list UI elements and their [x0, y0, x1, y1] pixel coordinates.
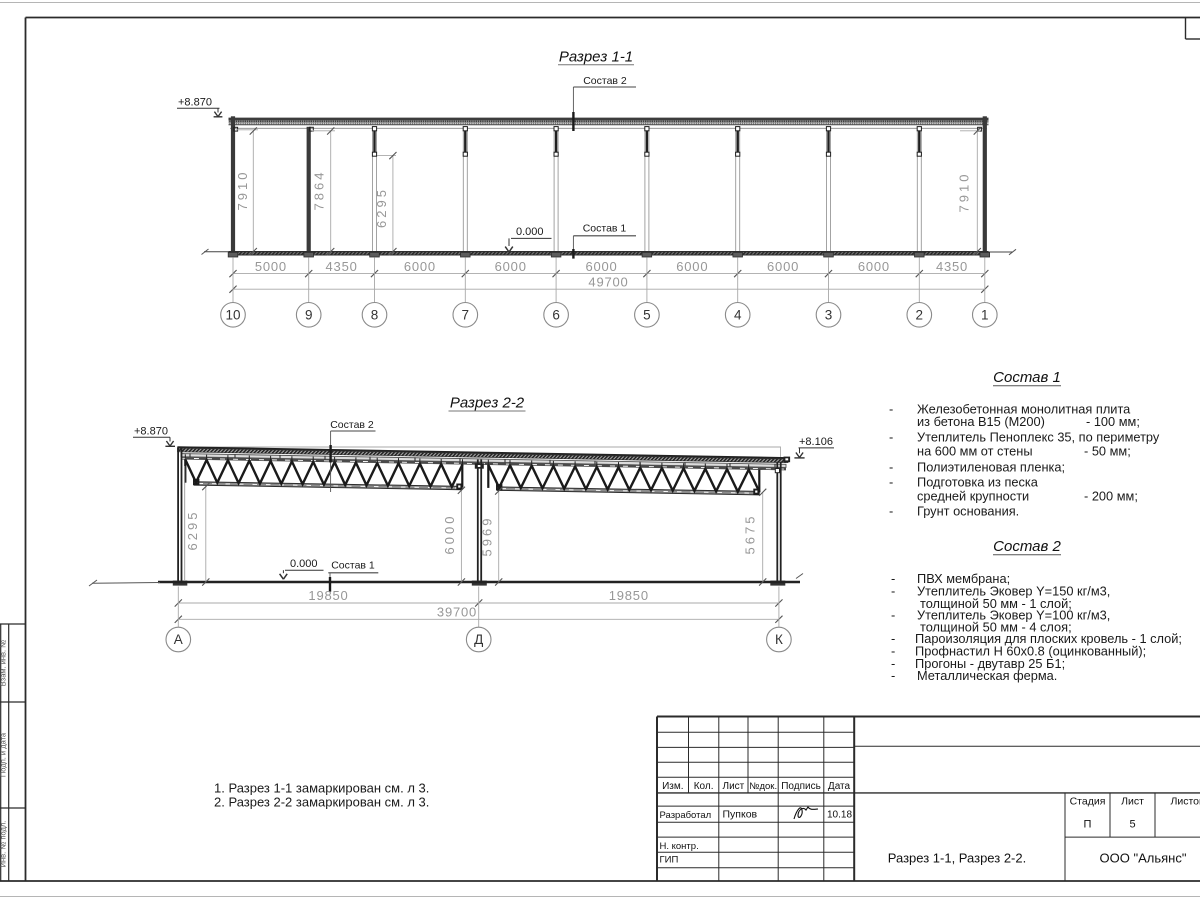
svg-text:Лист: Лист	[723, 781, 745, 792]
svg-text:4350: 4350	[326, 259, 358, 274]
svg-text:Грунт основания.: Грунт основания.	[917, 504, 1019, 519]
svg-text:7910: 7910	[957, 172, 972, 213]
svg-text:0.000: 0.000	[516, 226, 544, 238]
svg-text:ООО "Альянс": ООО "Альянс"	[1100, 851, 1187, 866]
svg-text:6000: 6000	[585, 259, 617, 274]
svg-text:-: -	[891, 584, 895, 599]
svg-text:Состав 2: Состав 2	[330, 419, 374, 431]
svg-text:10: 10	[225, 307, 240, 322]
svg-text:-: -	[891, 668, 895, 683]
svg-text:4350: 4350	[936, 259, 968, 274]
svg-text:Изм.: Изм.	[662, 781, 683, 792]
svg-text:№док.: №док.	[749, 781, 777, 792]
svg-text:Взам. инв. №: Взам. инв. №	[0, 640, 7, 686]
svg-text:+8.106: +8.106	[799, 436, 833, 448]
svg-text:Д: Д	[474, 632, 483, 647]
svg-text:ГИП: ГИП	[660, 855, 679, 866]
svg-text:Листов: Листов	[1170, 796, 1200, 808]
svg-text:на 600 мм от стены: на 600 мм от стены	[917, 444, 1033, 459]
svg-text:7864: 7864	[311, 170, 326, 211]
svg-text:А: А	[174, 632, 183, 647]
svg-text:9: 9	[305, 307, 313, 322]
svg-text:Подп. и дата: Подп. и дата	[0, 732, 7, 777]
svg-text:5675: 5675	[743, 514, 758, 555]
svg-text:Полиэтиленовая пленка;: Полиэтиленовая пленка;	[917, 460, 1065, 475]
svg-text:6000: 6000	[404, 259, 436, 274]
svg-text:19850: 19850	[609, 588, 649, 603]
svg-text:Разработал: Разработал	[660, 810, 712, 821]
svg-text:Подпись: Подпись	[781, 781, 821, 792]
svg-text:5969: 5969	[479, 516, 494, 557]
svg-text:6: 6	[552, 307, 560, 322]
svg-text:6000: 6000	[767, 259, 799, 274]
svg-text:0.000: 0.000	[290, 558, 318, 570]
svg-text:-: -	[889, 504, 893, 519]
svg-text:-: -	[889, 475, 893, 490]
svg-text:средней крупности: средней крупности	[917, 489, 1029, 504]
svg-text:6000: 6000	[495, 259, 527, 274]
svg-text:6000: 6000	[858, 259, 890, 274]
svg-text:10.18: 10.18	[827, 810, 852, 821]
svg-text:- 100 мм;: - 100 мм;	[1086, 414, 1140, 429]
svg-text:-: -	[889, 460, 893, 475]
svg-text:Состав 2: Состав 2	[993, 538, 1061, 555]
svg-text:2. Разрез 2-2 замаркирован см.: 2. Разрез 2-2 замаркирован см. л 3.	[214, 795, 429, 810]
svg-text:Состав 2: Состав 2	[583, 75, 627, 87]
svg-text:5: 5	[643, 307, 651, 322]
svg-text:5000: 5000	[255, 259, 287, 274]
svg-text:5: 5	[1129, 819, 1135, 831]
svg-text:Лист: Лист	[1121, 796, 1144, 808]
svg-text:1: 1	[981, 307, 989, 322]
svg-text:+8.870: +8.870	[178, 97, 212, 109]
svg-text:Металлическая ферма.: Металлическая ферма.	[917, 668, 1057, 683]
svg-text:+8.870: +8.870	[134, 426, 168, 438]
svg-text:- 200 мм;: - 200 мм;	[1084, 489, 1138, 504]
svg-text:8: 8	[371, 307, 379, 322]
svg-text:К: К	[775, 632, 783, 647]
svg-text:6000: 6000	[442, 514, 457, 555]
svg-text:Разрез 1-1, Разрез 2-2.: Разрез 1-1, Разрез 2-2.	[888, 851, 1026, 866]
svg-text:Состав 1: Состав 1	[331, 560, 375, 572]
svg-text:Кол.: Кол.	[694, 781, 714, 792]
svg-text:-: -	[889, 402, 893, 417]
svg-text:Утеплитель Пеноплекс 35, по пе: Утеплитель Пеноплекс 35, по периметру	[917, 430, 1160, 445]
svg-text:Дата: Дата	[828, 781, 851, 792]
svg-text:Инв. № подл.: Инв. № подл.	[0, 821, 7, 868]
svg-text:Разрез 2-2: Разрез 2-2	[450, 395, 525, 412]
svg-text:49700: 49700	[588, 275, 628, 290]
svg-text:1. Разрез 1-1 замаркирован см.: 1. Разрез 1-1 замаркирован см. л 3.	[214, 781, 429, 796]
svg-text:Состав 1: Состав 1	[993, 369, 1061, 386]
svg-text:Разрез 1-1: Разрез 1-1	[559, 49, 633, 66]
svg-text:6295: 6295	[374, 187, 389, 228]
svg-text:из бетона В15 (М200): из бетона В15 (М200)	[917, 414, 1045, 429]
svg-text:19850: 19850	[308, 588, 348, 603]
svg-text:Подготовка из песка: Подготовка из песка	[917, 475, 1039, 490]
svg-text:7: 7	[462, 307, 470, 322]
svg-text:7910: 7910	[235, 170, 250, 211]
svg-text:6295: 6295	[185, 510, 200, 551]
svg-text:4: 4	[734, 307, 742, 322]
svg-text:Стадия: Стадия	[1070, 796, 1106, 808]
svg-text:Н. контр.: Н. контр.	[660, 841, 699, 852]
svg-text:2: 2	[916, 307, 924, 322]
svg-text:6000: 6000	[676, 259, 708, 274]
svg-text:- 50 мм;: - 50 мм;	[1084, 444, 1131, 459]
svg-text:Пупков: Пупков	[723, 809, 758, 821]
svg-text:3: 3	[825, 307, 833, 322]
svg-text:П: П	[1084, 819, 1092, 831]
svg-text:-: -	[891, 608, 895, 623]
svg-text:Состав 1: Состав 1	[583, 223, 627, 235]
svg-text:39700: 39700	[437, 605, 477, 620]
svg-text:-: -	[889, 430, 893, 445]
